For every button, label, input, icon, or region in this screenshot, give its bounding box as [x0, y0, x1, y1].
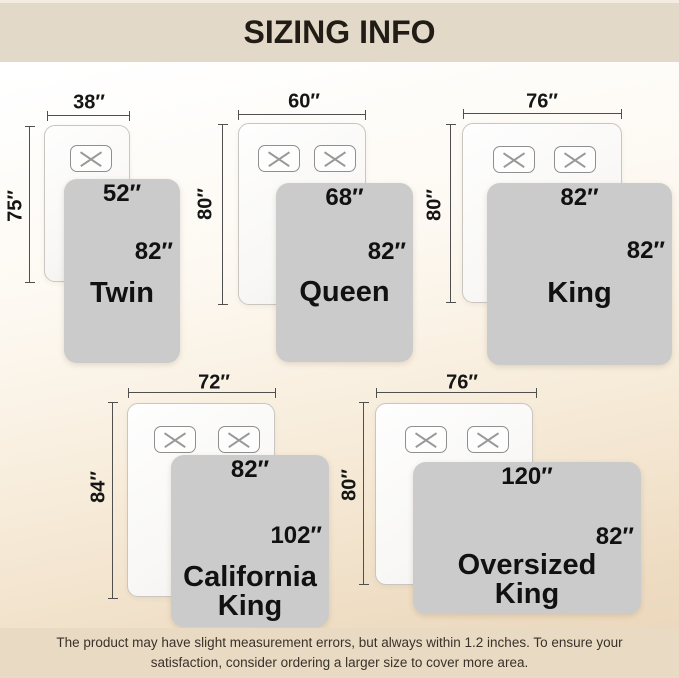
mattress-width-label: 38″: [73, 92, 105, 115]
mattress-width-label: 72″: [198, 372, 230, 395]
mattress-height-label: 80″: [195, 188, 218, 220]
mattress-height-label: 75″: [5, 190, 28, 222]
footer-band: The product may have slight measurement …: [0, 628, 679, 678]
bed-size-name: Oversized King: [413, 551, 641, 609]
bed-size-name: King: [487, 279, 672, 308]
pillow-icon: [218, 426, 260, 453]
pillow-icon: [258, 145, 300, 172]
sizing-info-poster: SIZING INFO 38″ 75″ 52″ 82″ Twin 60″ 80″…: [0, 0, 679, 678]
pillow-icon: [314, 145, 356, 172]
pillow-icon: [154, 426, 196, 453]
mattress-width-label: 76″: [446, 372, 478, 395]
height-dimension-line: [450, 124, 451, 303]
mattress-height-label: 80″: [424, 189, 447, 221]
blanket: 68″ 82″ Queen: [276, 183, 413, 362]
height-dimension-line: [29, 126, 30, 283]
bed-size-name: Twin: [64, 279, 180, 308]
blanket-width-label: 68″: [276, 184, 413, 212]
blanket-width-label: 82″: [487, 184, 672, 212]
height-dimension-line: [222, 124, 223, 305]
blanket-height-label: 82″: [627, 237, 665, 265]
pillow-icon: [405, 426, 447, 453]
mattress-height-label: 80″: [339, 469, 362, 501]
blanket-width-label: 82″: [171, 456, 329, 484]
blanket: 82″ 102″ California King: [171, 455, 329, 627]
mattress-width-label: 60″: [288, 91, 320, 114]
pillow-icon: [554, 146, 596, 173]
mattress-width-label: 76″: [526, 91, 558, 114]
blanket: 120″ 82″ Oversized King: [413, 462, 641, 614]
page-title: SIZING INFO: [0, 0, 679, 62]
header-band: SIZING INFO: [0, 0, 679, 62]
bed-size-name: California King: [171, 563, 329, 621]
blanket: 82″ 82″ King: [487, 183, 672, 365]
disclaimer-line-1: The product may have slight measurement …: [0, 634, 679, 652]
blanket: 52″ 82″ Twin: [64, 179, 180, 363]
blanket-height-label: 82″: [596, 523, 634, 551]
height-dimension-line: [363, 402, 364, 585]
blanket-height-label: 82″: [135, 238, 173, 266]
pillow-icon: [493, 146, 535, 173]
height-dimension-line: [112, 402, 113, 599]
blanket-height-label: 102″: [270, 522, 322, 550]
blanket-height-label: 82″: [368, 238, 406, 266]
width-dimension-line: [238, 114, 366, 115]
pillow-icon: [467, 426, 509, 453]
disclaimer-line-2: satisfaction, consider ordering a larger…: [0, 654, 679, 672]
pillow-icon: [70, 145, 112, 172]
mattress-height-label: 84″: [88, 471, 111, 503]
blanket-width-label: 52″: [64, 180, 180, 208]
bed-size-name: Queen: [276, 278, 413, 307]
width-dimension-line: [47, 115, 130, 116]
blanket-width-label: 120″: [413, 463, 641, 491]
